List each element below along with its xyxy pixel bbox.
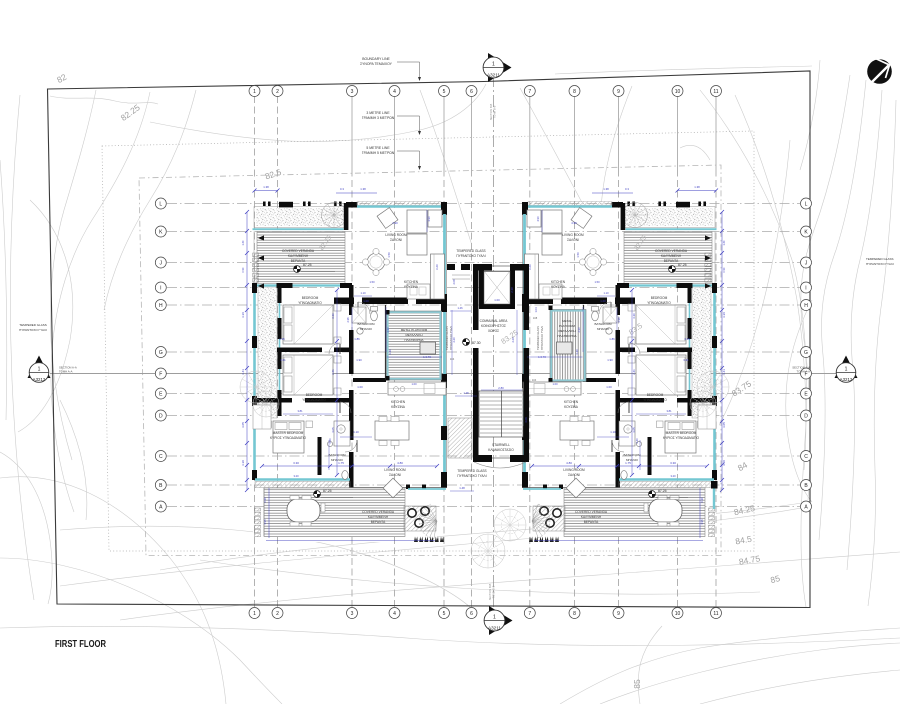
svg-text:1.10: 1.10 (353, 430, 359, 434)
svg-text:85: 85 (769, 573, 781, 585)
svg-text:5: 5 (443, 89, 446, 95)
svg-text:TEMPERED GLASS: TEMPERED GLASS (19, 323, 47, 327)
svg-text:ΥΠΝΟΔΩΜΑΤΙΟ: ΥΠΝΟΔΩΜΑΤΙΟ (643, 398, 667, 402)
svg-text:ΒΕΡΑΝΤΑ: ΒΕΡΑΝΤΑ (664, 259, 679, 263)
svg-text:COVERED VERANDA: COVERED VERANDA (362, 510, 395, 514)
svg-text:5 METRE LINE: 5 METRE LINE (366, 146, 390, 150)
svg-text:3.15: 3.15 (684, 337, 690, 341)
svg-text:1.86: 1.86 (354, 337, 360, 341)
svg-text:11: 11 (713, 89, 718, 95)
svg-text:3.41: 3.41 (280, 358, 286, 362)
svg-text:3.81: 3.81 (297, 409, 303, 413)
svg-text:1.50: 1.50 (594, 280, 600, 284)
svg-text:2.40: 2.40 (635, 438, 639, 444)
svg-text:3.36: 3.36 (331, 313, 335, 319)
svg-text:2.41: 2.41 (632, 369, 636, 375)
svg-text:3.20: 3.20 (293, 474, 299, 478)
svg-text:1.00: 1.00 (552, 382, 558, 386)
svg-text:H: H (804, 303, 808, 309)
svg-text:ΜΕΤΑΛΛΙΚΗ: ΜΕΤΑΛΛΙΚΗ (558, 329, 575, 333)
svg-text:108: 108 (533, 316, 538, 320)
svg-text:ΒΕΡΑΝΤΑ: ΒΕΡΑΝΤΑ (584, 520, 599, 524)
svg-text:1: 1 (253, 89, 256, 95)
svg-text:3.30: 3.30 (293, 461, 299, 465)
svg-text:ΠΥΡΑΝΤΟΧΟ ΓΥΑΛΙ: ΠΥΡΑΝΤΟΧΟ ΓΥΑΛΙ (457, 474, 487, 478)
svg-text:3 METRE LINE: 3 METRE LINE (366, 111, 390, 115)
svg-text:1.90: 1.90 (607, 358, 613, 362)
svg-text:3.05: 3.05 (241, 422, 245, 428)
svg-text:85: 85 (632, 679, 642, 689)
svg-text:BEDROOM: BEDROOM (651, 296, 668, 300)
svg-text:BEDROOM: BEDROOM (647, 393, 664, 397)
svg-text:TEMPERED GLASS: TEMPERED GLASS (536, 326, 540, 350)
svg-text:4.90: 4.90 (392, 221, 398, 225)
svg-text:84.5: 84.5 (734, 534, 752, 547)
svg-text:ΓΡΑΜΜΗ 3 ΜΕΤΡΩΝ: ΓΡΑΜΜΗ 3 ΜΕΤΡΩΝ (362, 116, 395, 120)
svg-text:1.30: 1.30 (723, 240, 726, 245)
svg-text:D: D (804, 413, 808, 419)
svg-text:ΚΟΥΖΙΝΑ: ΚΟΥΖΙΝΑ (564, 405, 579, 409)
svg-text:KITCHEN: KITCHEN (551, 280, 566, 284)
svg-text:METAL PLATFORM: METAL PLATFORM (401, 328, 428, 332)
svg-text:A3211: A3211 (487, 73, 500, 78)
svg-text:MASTER BEDROOM: MASTER BEDROOM (273, 431, 304, 435)
svg-text:1.75: 1.75 (338, 461, 344, 465)
svg-text:COVERED VERANDA: COVERED VERANDA (575, 510, 608, 514)
svg-text:1.46: 1.46 (457, 306, 463, 310)
svg-text:A3212: A3212 (33, 377, 46, 382)
svg-text:1.38: 1.38 (694, 185, 700, 189)
svg-text:2.36: 2.36 (617, 317, 621, 323)
svg-text:7: 7 (528, 611, 531, 617)
svg-text:ΧΩΡΟΣ: ΧΩΡΟΣ (488, 329, 499, 333)
svg-text:2.36: 2.36 (346, 317, 350, 323)
svg-text:3.40: 3.40 (575, 349, 579, 355)
svg-text:ΣΑΛΟΝΙ: ΣΑΛΟΝΙ (390, 238, 402, 242)
svg-text:FIRST FLOOR: FIRST FLOOR (55, 639, 107, 650)
svg-text:3.41: 3.41 (722, 369, 726, 375)
svg-text:1.00: 1.00 (363, 299, 369, 303)
svg-text:6.60: 6.60 (435, 264, 439, 270)
svg-text:2.38: 2.38 (510, 287, 514, 293)
svg-text:0.90: 0.90 (700, 497, 704, 503)
svg-text:TOMH A-A: TOMH A-A (797, 370, 811, 374)
svg-text:LIVING ROOM: LIVING ROOM (563, 468, 585, 472)
svg-text:STAIRWELL: STAIRWELL (492, 443, 510, 447)
svg-text:3.20: 3.20 (670, 474, 676, 478)
svg-text:3.30: 3.30 (241, 460, 245, 466)
svg-text:1.50: 1.50 (387, 252, 391, 258)
svg-text:87.25: 87.25 (323, 489, 332, 493)
svg-text:ΣΑΛΟΝΙ: ΣΑΛΟΝΙ (568, 473, 580, 477)
svg-text:4.80: 4.80 (397, 461, 403, 465)
svg-text:2.30: 2.30 (386, 327, 390, 333)
svg-text:3.41: 3.41 (241, 369, 245, 375)
svg-text:C: C (804, 454, 808, 460)
svg-text:0.90: 0.90 (242, 267, 245, 272)
svg-text:4: 4 (393, 611, 396, 617)
svg-text:ΠΥΡΑΝΤΟΧΟ ΓΥΑΛΙ: ΠΥΡΑΝΤΟΧΟ ΓΥΑΛΙ (456, 254, 486, 258)
svg-text:1.38: 1.38 (360, 187, 366, 191)
svg-text:COVERED VERANDA: COVERED VERANDA (282, 249, 315, 253)
svg-text:1.75: 1.75 (625, 461, 631, 465)
svg-text:ΒΕΡΑΝΤΑ: ΒΕΡΑΝΤΑ (291, 259, 306, 263)
svg-text:82.5: 82.5 (264, 167, 283, 182)
svg-text:3.05: 3.05 (331, 427, 335, 433)
svg-text:ΠΥΡΑΝΤΟΧΟ ΓΥΑΛΙ: ΠΥΡΑΝΤΟΧΟ ΓΥΑΛΙ (866, 262, 894, 266)
svg-text:KITCHEN: KITCHEN (564, 400, 579, 404)
svg-text:3.95: 3.95 (263, 519, 267, 525)
svg-text:ΚΑΛΥΜΜΕΝΗ: ΚΑΛΥΜΜΕΝΗ (288, 254, 309, 258)
svg-text:4.80: 4.80 (566, 461, 572, 465)
svg-text:ΚΟΥΖΙΝΑ: ΚΟΥΖΙΝΑ (391, 405, 406, 409)
svg-text:1.48: 1.48 (463, 391, 469, 395)
svg-text:4: 4 (393, 89, 396, 95)
svg-text:BEDROOM: BEDROOM (302, 296, 319, 300)
svg-text:1.10: 1.10 (603, 291, 609, 295)
svg-text:ΣΑΛΟΝΙ: ΣΑΛΟΝΙ (389, 473, 401, 477)
svg-text:3.09: 3.09 (524, 417, 528, 423)
svg-text:3.41: 3.41 (683, 358, 689, 362)
svg-text:ΚΟΥΖΙΝΑ: ΚΟΥΖΙΝΑ (551, 285, 566, 289)
svg-text:3.36: 3.36 (722, 312, 726, 318)
svg-text:84: 84 (736, 460, 749, 474)
svg-text:PLATFORM: PLATFORM (559, 324, 576, 328)
svg-text:4.90: 4.90 (427, 216, 431, 222)
svg-text:84.75: 84.75 (738, 553, 761, 567)
svg-text:3.36: 3.36 (632, 313, 636, 319)
svg-text:TOMH B-B: TOMH B-B (493, 105, 497, 118)
svg-text:104: 104 (532, 378, 537, 382)
svg-text:1.00: 1.00 (606, 385, 612, 389)
svg-text:1.38: 1.38 (263, 185, 269, 189)
svg-text:2.20: 2.20 (511, 337, 515, 343)
svg-text:1: 1 (38, 367, 41, 373)
svg-text:0.90: 0.90 (723, 267, 726, 272)
svg-text:2.08: 2.08 (452, 279, 456, 285)
svg-text:TOMH A-A: TOMH A-A (59, 370, 73, 374)
svg-text:2.80: 2.80 (498, 386, 504, 390)
svg-text:82: 82 (55, 72, 68, 85)
svg-text:1.04: 1.04 (534, 307, 538, 313)
svg-text:D: D (159, 413, 163, 419)
svg-text:3.15: 3.15 (279, 337, 285, 341)
svg-text:G: G (159, 350, 163, 356)
svg-text:87.25: 87.25 (678, 263, 687, 267)
svg-text:KITCHEN: KITCHEN (404, 280, 419, 284)
svg-text:2: 2 (276, 611, 279, 617)
svg-text:ΚΟΙΝΟΧΡΗΣΤΟΣ: ΚΟΙΝΟΧΡΗΣΤΟΣ (481, 324, 506, 328)
svg-text:1.30: 1.30 (242, 240, 245, 245)
svg-text:TEMPERED GLASS: TEMPERED GLASS (445, 326, 449, 350)
svg-text:ΚΟΥΖΙΝΑ: ΚΟΥΖΙΝΑ (404, 285, 419, 289)
svg-text:1: 1 (493, 615, 496, 621)
svg-text:BOUNDARY LINE: BOUNDARY LINE (362, 57, 390, 61)
svg-text:104: 104 (450, 357, 455, 361)
svg-text:L: L (805, 201, 808, 207)
svg-text:3.05: 3.05 (632, 427, 636, 433)
svg-text:A3212: A3212 (840, 377, 853, 382)
svg-text:LIVING ROOM: LIVING ROOM (562, 233, 584, 237)
svg-text:LIVING ROOM: LIVING ROOM (385, 233, 407, 237)
svg-text:1: 1 (845, 367, 848, 373)
svg-text:1.00: 1.00 (357, 385, 363, 389)
svg-text:TEMPERED GLASS: TEMPERED GLASS (457, 469, 486, 473)
svg-text:ΥΠΝΟΔΩΜΑΤΙΟ: ΥΠΝΟΔΩΜΑΤΙΟ (647, 301, 671, 305)
svg-text:COMMUNAL AREA: COMMUNAL AREA (480, 319, 509, 323)
svg-text:1.10: 1.10 (610, 430, 616, 434)
svg-text:TOMH B-B: TOMH B-B (492, 585, 496, 598)
svg-text:0.90: 0.90 (263, 497, 267, 503)
svg-text:ΠΥΡΑΝΤΟΧΟ ΓΥΑΛΙ: ΠΥΡΑΝΤΟΧΟ ΓΥΑΛΙ (19, 328, 47, 332)
svg-text:L: L (159, 201, 162, 207)
svg-text:6: 6 (470, 611, 473, 617)
svg-text:A3211: A3211 (488, 626, 501, 631)
svg-text:2.40: 2.40 (328, 438, 332, 444)
svg-text:C: C (159, 454, 163, 460)
svg-text:ΒΕΡΑΝΤΑ: ΒΕΡΑΝΤΑ (371, 520, 386, 524)
svg-text:ΣΥΝΟΡΑ ΤΕΜΑΧΙΟΥ: ΣΥΝΟΡΑ ΤΕΜΑΧΙΟΥ (360, 62, 393, 66)
svg-text:0.3: 0.3 (625, 187, 629, 191)
svg-text:ΚΑΛΥΜΜΕΝΗ: ΚΑΛΥΜΜΕΝΗ (661, 254, 682, 258)
svg-text:9: 9 (617, 89, 620, 95)
svg-text:I: I (805, 285, 806, 291)
svg-text:ΚΑΛΥΜΜΕΝΗ: ΚΑΛΥΜΜΕΝΗ (368, 515, 389, 519)
svg-text:ΣΑΛΟΝΙ: ΣΑΛΟΝΙ (567, 238, 579, 242)
svg-text:ΥΠΝΟΔΩΜΑΤΙΟ: ΥΠΝΟΔΩΜΑΤΙΟ (302, 398, 326, 402)
svg-text:1: 1 (253, 611, 256, 617)
svg-text:82.25: 82.25 (119, 102, 142, 123)
svg-text:10: 10 (675, 611, 681, 617)
svg-text:COVERED VERANDA: COVERED VERANDA (655, 249, 688, 253)
svg-text:BATHROOM: BATHROOM (594, 322, 612, 326)
svg-text:1.00: 1.00 (494, 298, 500, 302)
svg-text:84.25: 84.25 (733, 503, 756, 517)
svg-text:3.36: 3.36 (241, 312, 245, 318)
svg-text:G: G (804, 350, 808, 356)
svg-text:ΜΕΤΑΛΛΙΚΗ: ΜΕΤΑΛΛΙΚΗ (405, 333, 422, 337)
svg-text:1.38: 1.38 (603, 187, 609, 191)
svg-text:BATHROOM: BATHROOM (623, 453, 641, 457)
svg-text:3.30: 3.30 (722, 460, 726, 466)
svg-text:LIVING ROOM: LIVING ROOM (384, 468, 406, 472)
svg-text:SECTION B-B: SECTION B-B (489, 103, 493, 120)
svg-text:TEMPERED GLASS: TEMPERED GLASS (456, 249, 485, 253)
svg-text:1.00: 1.00 (411, 382, 417, 386)
svg-text:11: 11 (713, 611, 718, 617)
svg-text:BATHROOM: BATHROOM (357, 322, 375, 326)
svg-text:10: 10 (675, 89, 681, 95)
svg-text:6.60: 6.60 (528, 264, 532, 270)
svg-text:3.95: 3.95 (700, 519, 704, 525)
svg-text:ΠΥΡΑΝΤΟΧΟ ΓΥΑΛΙ: ΠΥΡΑΝΤΟΧΟ ΓΥΑΛΙ (540, 326, 544, 350)
svg-text:2: 2 (276, 89, 279, 95)
svg-text:KITCHEN: KITCHEN (391, 400, 406, 404)
svg-text:ΓΡΑΜΜΗ 5 ΜΕΤΡΩΝ: ΓΡΑΜΜΗ 5 ΜΕΤΡΩΝ (362, 151, 395, 155)
svg-text:6: 6 (470, 89, 473, 95)
svg-text:87.25: 87.25 (303, 263, 312, 267)
svg-text:SECTION B-B: SECTION B-B (488, 583, 492, 600)
svg-text:1.00: 1.00 (600, 299, 606, 303)
svg-text:3: 3 (351, 611, 354, 617)
svg-text:BEDROOM: BEDROOM (306, 393, 323, 397)
svg-text:F: F (159, 371, 162, 377)
svg-text:1.90: 1.90 (356, 358, 362, 362)
svg-text:7: 7 (528, 89, 531, 95)
svg-text:ΜΠΑΝΙΟ: ΜΠΑΝΙΟ (597, 327, 610, 331)
svg-text:2.20: 2.20 (452, 337, 456, 343)
svg-text:1.50: 1.50 (576, 252, 580, 258)
svg-text:1.10: 1.10 (360, 291, 366, 295)
svg-text:8: 8 (573, 89, 576, 95)
svg-text:1.50: 1.50 (369, 280, 375, 284)
svg-text:8: 8 (573, 611, 576, 617)
svg-text:ΚΥΡΙΟΣ ΥΠΝΟΔΩΜΑΤΙΟ: ΚΥΡΙΟΣ ΥΠΝΟΔΩΜΑΤΙΟ (663, 436, 700, 440)
svg-text:ΠΛΑΤΦΟΡΜΑ: ΠΛΑΤΦΟΡΜΑ (558, 334, 577, 338)
svg-text:87.25: 87.25 (658, 489, 667, 493)
svg-text:ΠΛΑΤΦΟΡΜΑ: ΠΛΑΤΦΟΡΜΑ (405, 338, 424, 342)
svg-text:4.90: 4.90 (536, 216, 540, 222)
svg-text:ΥΠΝΟΔΩΜΑΤΙΟ: ΥΠΝΟΔΩΜΑΤΙΟ (298, 301, 322, 305)
svg-text:BATHROOM: BATHROOM (328, 453, 346, 457)
svg-text:4.90: 4.90 (571, 221, 577, 225)
svg-text:ΚΑΛΥΜΜΕΝΗ: ΚΑΛΥΜΜΕΝΗ (581, 515, 602, 519)
svg-text:I: I (160, 285, 161, 291)
svg-text:2.30: 2.30 (577, 327, 581, 333)
svg-text:TEMPERED GLASS: TEMPERED GLASS (866, 257, 894, 261)
svg-text:MASTER BEDROOM: MASTER BEDROOM (666, 431, 697, 435)
svg-text:0.3: 0.3 (340, 187, 344, 191)
svg-text:ΚΛΙΜΑΚΟΣΤΑΣΙΟ: ΚΛΙΜΑΚΟΣΤΑΣΙΟ (488, 448, 514, 452)
svg-text:3.40: 3.40 (388, 349, 392, 355)
svg-text:ΚΥΡΙΟΣ ΥΠΝΟΔΩΜΑΤΙΟ: ΚΥΡΙΟΣ ΥΠΝΟΔΩΜΑΤΙΟ (270, 436, 307, 440)
svg-text:1.86: 1.86 (609, 337, 615, 341)
svg-text:3.30: 3.30 (670, 461, 676, 465)
svg-text:3.05: 3.05 (722, 422, 726, 428)
svg-text:METAL: METAL (562, 319, 572, 323)
svg-text:9: 9 (617, 611, 620, 617)
svg-text:83.75: 83.75 (730, 378, 754, 398)
svg-text:5: 5 (443, 611, 446, 617)
svg-text:1.48: 1.48 (459, 486, 465, 490)
svg-text:ΜΠΑΝΙΟ: ΜΠΑΝΙΟ (360, 327, 373, 331)
svg-text:3: 3 (351, 89, 354, 95)
svg-text:87.30: 87.30 (472, 341, 481, 345)
svg-text:H: H (159, 303, 163, 309)
svg-text:3.81: 3.81 (666, 409, 672, 413)
svg-text:2.41: 2.41 (331, 369, 335, 375)
svg-text:1: 1 (492, 62, 495, 68)
